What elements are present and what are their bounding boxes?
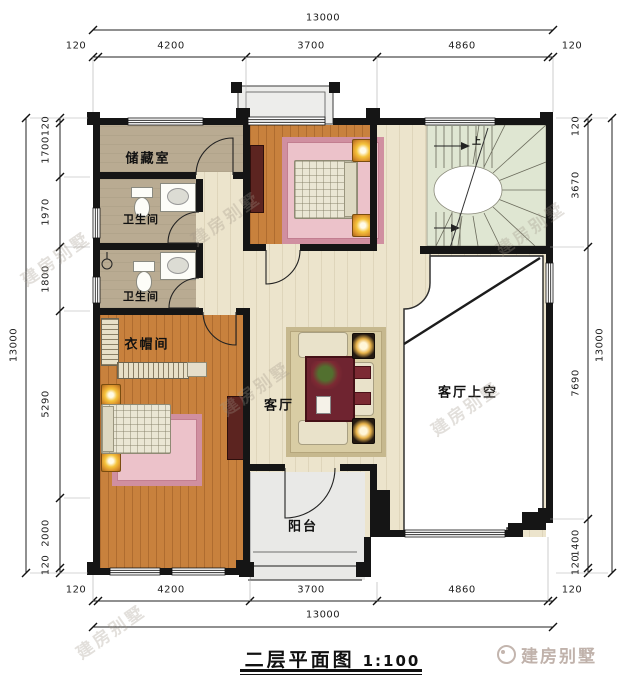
dim-left-seg-0: 120: [41, 116, 52, 137]
plan-scale: 1:100: [363, 652, 421, 670]
room-label-bath1: 卫生间: [123, 211, 159, 227]
dim-right-seg-1: 3670: [571, 171, 582, 198]
dim-bottom-seg-0: 120: [66, 585, 87, 596]
plan-linework: [0, 0, 640, 684]
dim-right-seg-4: 120: [571, 555, 582, 576]
dim-right-seg-3: 1400: [571, 529, 582, 556]
dim-left-seg-5: 2000: [41, 519, 52, 546]
dim-top-seg-1: 4200: [157, 41, 184, 52]
title-block: 二层平面图1:100: [240, 645, 425, 672]
brand-logo-icon: [497, 645, 516, 664]
room-label-storage: 储藏室: [125, 148, 170, 167]
room-label-cloakroom: 衣帽间: [124, 334, 169, 353]
dim-bottom-seg-3: 4860: [448, 585, 475, 596]
dim-top-seg-0: 120: [66, 41, 87, 52]
dim-top-seg-3: 4860: [448, 41, 475, 52]
dim-bottom-seg-2: 3700: [297, 585, 324, 596]
title-underline-thin: [240, 674, 422, 675]
dim-top-total: 13000: [306, 13, 340, 24]
dim-left-seg-3: 1800: [41, 265, 52, 292]
brand-logo-text: 建房别墅: [521, 642, 597, 667]
stair-up-label: 上: [472, 134, 481, 147]
dim-left-seg-1: 1700: [41, 136, 52, 163]
dim-left-seg-6: 120: [41, 555, 52, 576]
plan-title: 二层平面图: [245, 649, 355, 671]
dim-right-seg-2: 7690: [571, 369, 582, 396]
balcony-railing: [248, 552, 362, 580]
room-label-living-void: 客厅上空: [438, 382, 498, 401]
spiral-staircase: [427, 125, 546, 248]
dim-left-seg-4: 5290: [41, 390, 52, 417]
room-label-bath2: 卫生间: [123, 288, 159, 304]
floor-plan-canvas: 储藏室 卫生间 卫生间 衣帽间 客厅 客厅上空 阳台 上 13000 120 4…: [0, 0, 640, 684]
dim-bottom-total: 13000: [306, 610, 340, 621]
dim-top-seg-4: 120: [562, 41, 583, 52]
title-underline-thick: [240, 669, 422, 672]
dim-left-seg-2: 1970: [41, 198, 52, 225]
dim-left-total: 13000: [9, 328, 20, 362]
brand-logo: 建房别墅: [497, 642, 597, 667]
dim-top-seg-2: 3700: [297, 41, 324, 52]
dim-bottom-seg-4: 120: [562, 585, 583, 596]
room-label-balcony: 阳台: [288, 516, 318, 535]
doors-layer: [102, 138, 335, 518]
dim-right-total: 13000: [595, 328, 606, 362]
dim-right-seg-0: 120: [571, 116, 582, 137]
dim-bottom-seg-1: 4200: [157, 585, 184, 596]
room-label-living: 客厅: [264, 395, 294, 414]
